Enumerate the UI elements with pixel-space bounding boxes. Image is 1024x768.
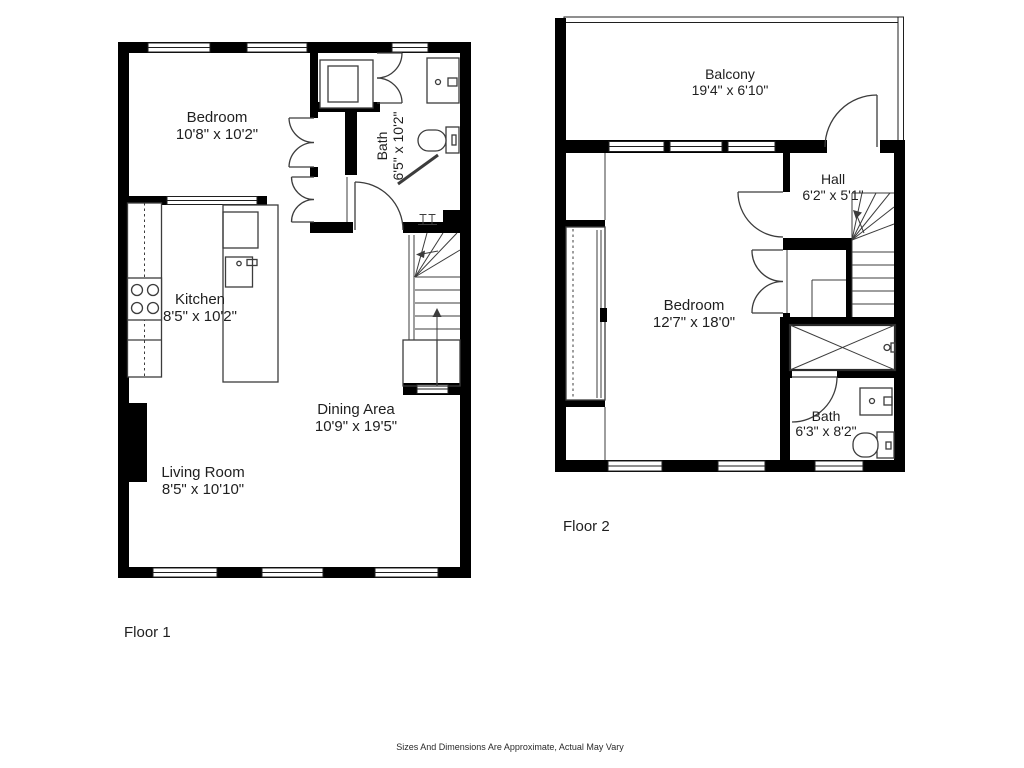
f1-chimney (118, 403, 147, 482)
floor2-label: Floor 2 (563, 518, 610, 535)
f2-bath-sink (860, 388, 892, 415)
f1-kitchen-name: Kitchen (175, 291, 225, 308)
f2-wall-right (894, 140, 905, 472)
disclaimer-text: Sizes And Dimensions Are Approximate, Ac… (396, 742, 624, 752)
floor2-plan: Balcony 19'4" x 6'10" Hall 6'2" x 5'1" B… (555, 17, 905, 535)
f1-kitchen-island (223, 205, 278, 382)
f1-stove (128, 278, 162, 320)
f2-bath-dims: 6'3" x 8'2" (795, 423, 856, 439)
f2-south-windows (608, 461, 863, 471)
f1-bath-name: Bath (374, 132, 390, 161)
f1-stairs (403, 233, 460, 386)
f2-closet-shelf (812, 280, 846, 317)
f1-room-label-bath: Bath 6'5" x 10'2" (374, 111, 406, 180)
floor1-plan: Bedroom 10'8" x 10'2" Bath 6'5" x 10'2" … (118, 42, 471, 641)
f2-balcony-door-opening (827, 140, 880, 153)
f1-living-dims: 8'5" x 10'10" (162, 481, 244, 498)
f2-toilet (853, 432, 894, 458)
floorplan-image: Bedroom 10'8" x 10'2" Bath 6'5" x 10'2" … (0, 0, 1024, 768)
f2-wardrobe (566, 153, 607, 460)
f2-balcony-door (825, 95, 877, 147)
f1-bath-door (355, 182, 403, 230)
f1-dining-name: Dining Area (317, 401, 395, 418)
f1-wall-right (460, 42, 471, 578)
f1-utility-bifold-doors (377, 53, 402, 103)
f1-room-label-dining: Dining Area 10'9" x 19'5" (315, 401, 397, 435)
f1-bath-dims: 6'5" x 10'2" (390, 111, 406, 180)
f2-balcony-windows (609, 142, 775, 152)
f2-bath-name: Bath (812, 408, 841, 424)
f2-wall-left (555, 18, 566, 472)
f2-hall-name: Hall (821, 171, 845, 187)
f1-closet-doors-lower (292, 177, 348, 222)
f1-bath-sink (427, 58, 459, 103)
f1-closet-doors-upper (289, 118, 314, 167)
f2-bedroom-dims: 12'7" x 18'0" (653, 314, 735, 331)
f1-room-label-bedroom: Bedroom 10'8" x 10'2" (176, 109, 258, 143)
f1-bedroom-dims: 10'8" x 10'2" (176, 126, 258, 143)
f1-living-name: Living Room (161, 464, 244, 481)
f1-dining-dims: 10'9" x 19'5" (315, 418, 397, 435)
f2-hall-dims: 6'2" x 5'1" (802, 187, 863, 203)
f2-stairs (852, 193, 894, 317)
f1-room-label-living: Living Room 8'5" x 10'10" (161, 464, 244, 498)
f2-shower-tub (790, 325, 895, 370)
f2-closet-bifold-doors (752, 250, 787, 313)
f2-hall-south-wall (783, 238, 852, 250)
f2-balcony-dims: 19'4" x 6'10" (692, 82, 769, 98)
floor1-label: Floor 1 (124, 624, 171, 641)
f1-kitchen-dims: 8'5" x 10'2" (163, 308, 237, 325)
f1-washer-unit (320, 60, 373, 108)
f2-room-label-hall: Hall 6'2" x 5'1" (802, 171, 863, 203)
f1-bedroom-name: Bedroom (187, 109, 248, 126)
f1-toilet (418, 127, 459, 153)
f2-hall-door (738, 192, 783, 237)
f2-bath-west-wall (780, 317, 790, 460)
f2-room-label-balcony: Balcony 19'4" x 6'10" (692, 66, 769, 98)
f2-balcony-name: Balcony (705, 66, 755, 82)
f2-room-label-bath: Bath 6'3" x 8'2" (795, 408, 856, 439)
f2-bedroom-name: Bedroom (664, 297, 725, 314)
f2-room-label-bedroom: Bedroom 12'7" x 18'0" (653, 297, 735, 331)
